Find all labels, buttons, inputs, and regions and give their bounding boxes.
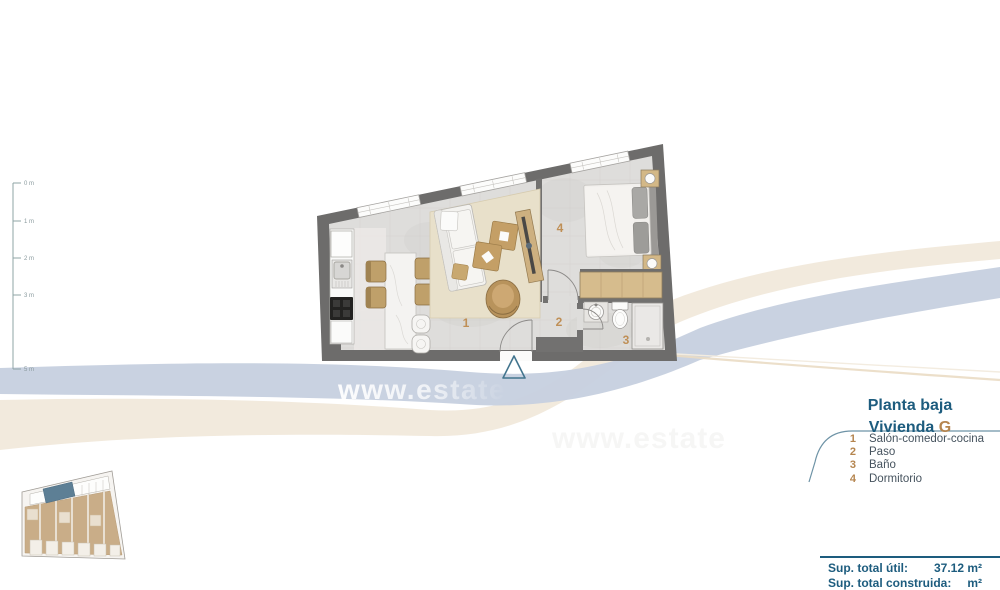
scale-ruler-labels: 0 m 1 m 2 m 3 m 5 m: [24, 181, 34, 373]
scale-ruler: [13, 183, 21, 369]
fridge: [331, 231, 352, 257]
legend-num: 1: [820, 433, 856, 445]
room-label-bath: 3: [623, 333, 630, 347]
legend-row-hall: 2 Paso: [820, 446, 1000, 459]
kitchen-counter: [330, 229, 354, 344]
room-label-bedroom: 4: [557, 221, 564, 235]
legend-row-bedroom: 4 Dormitorio: [820, 473, 1000, 486]
legend-num: 4: [820, 473, 856, 485]
ruler-label-3m: 3 m: [24, 293, 34, 299]
legend-num: 2: [820, 446, 856, 458]
ruler-label-1m: 1 m: [24, 219, 34, 225]
ruler-label-2m: 2 m: [24, 256, 34, 262]
legend-label: Salón-comedor-cocina: [869, 433, 984, 445]
bathroom-vanity: [584, 302, 608, 322]
plan-title-line1: Planta baja: [820, 395, 1000, 417]
watermark-ghost: www.estate: [551, 422, 726, 455]
toilet: [612, 302, 628, 329]
room-label-hall: 2: [556, 315, 563, 329]
wardrobe: [580, 269, 662, 298]
shower: [632, 303, 663, 349]
bathroom-doorway: [577, 309, 583, 330]
kitchen-cabinet: [331, 321, 352, 343]
room-label-living: 1: [463, 316, 470, 330]
cooktop: [330, 297, 353, 320]
nightstand-top: [641, 170, 659, 187]
summary-label: Sup. total útil:: [828, 561, 908, 575]
legend-label: Baño: [869, 459, 896, 471]
floor-plan: 1 2 3 4: [317, 144, 677, 378]
summary-secondary-label: Sup. total construida:: [828, 576, 951, 590]
sofa-pillow-tan: [451, 263, 468, 280]
watermark-text: www.estate: [337, 374, 506, 405]
legend-row-bath: 3 Baño: [820, 459, 1000, 472]
room-legend: 1 Salón-comedor-cocina 2 Paso 3 Baño 4 D…: [820, 433, 1000, 486]
sofa-pillow-white: [440, 211, 458, 231]
armchair: [486, 280, 520, 318]
entry-wall-block: [536, 337, 583, 352]
bedroom-doorway: [548, 296, 578, 303]
bed: [584, 180, 659, 260]
dining-island: [385, 253, 416, 349]
wall-hall-bath-upper: [577, 303, 583, 309]
summary-divider: [820, 556, 1000, 558]
legend-label: Paso: [869, 446, 895, 458]
legend-label: Dormitorio: [869, 473, 922, 485]
summary-row: Sup. total útil: 37.12 m²: [828, 561, 982, 575]
summary-row-secondary: Sup. total construida: m²: [828, 576, 982, 590]
pillow: [632, 187, 648, 219]
wall-bedroom-hall-stub: [543, 296, 548, 303]
kitchen-sink: [332, 260, 352, 288]
summary-secondary-value: m²: [967, 576, 982, 590]
legend-row-living: 1 Salón-comedor-cocina: [820, 433, 1000, 446]
pillow: [633, 222, 649, 254]
site-key-map: [22, 471, 125, 559]
summary-value: 37.12 m²: [934, 561, 982, 575]
ruler-label-0m: 0 m: [24, 181, 34, 187]
ruler-label-5m: 5 m: [24, 367, 34, 373]
floorplan-scene: www.estate www.estate 0 m 1 m 2 m 3 m 5 …: [0, 0, 1000, 578]
legend-num: 3: [820, 459, 856, 471]
